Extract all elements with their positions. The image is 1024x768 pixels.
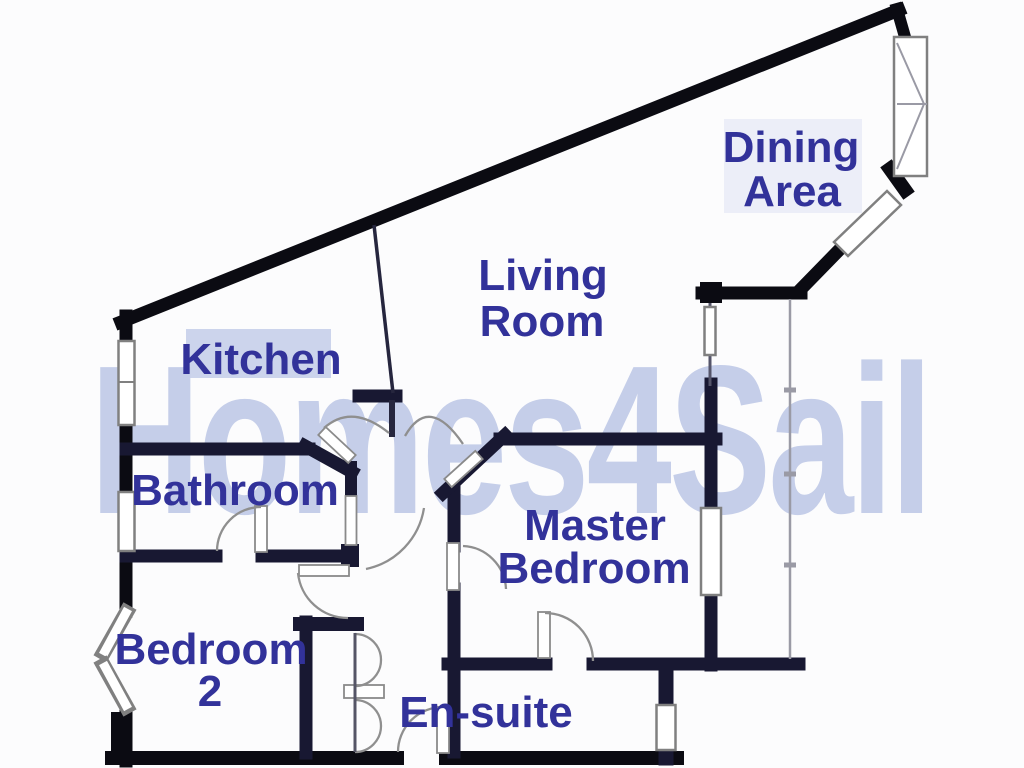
living-room-label-line1: Living xyxy=(478,251,608,300)
master-bedroom-window-icon xyxy=(701,508,721,595)
master-door-leaf xyxy=(447,543,459,590)
floor-plan-drawing: Homes4Sail xyxy=(0,0,1024,768)
master-bedroom-label-line1: Master xyxy=(524,501,666,550)
bedroom2-door-leaf xyxy=(299,565,349,576)
bathroom-label: Bathroom xyxy=(131,466,339,515)
bedroom2-label-line2: 2 xyxy=(198,667,222,716)
bedroom2-door-arc xyxy=(298,573,348,618)
dining-area-label-line1: Dining xyxy=(723,123,860,172)
ensuite-door-arc xyxy=(545,613,593,661)
closet-bifold-arc-top xyxy=(355,634,381,686)
closet-divider-bar xyxy=(344,685,384,698)
living-room-label-line2: Room xyxy=(480,297,605,346)
kitchen-label: Kitchen xyxy=(180,335,341,384)
bathroom-hall-door-leaf xyxy=(346,496,357,545)
right-peak-wall xyxy=(897,9,905,37)
bathroom-corner-post xyxy=(341,544,359,567)
ensuite-window-icon xyxy=(657,705,676,750)
closet-bifold-arc-bottom xyxy=(355,700,381,752)
balcony-corner-post xyxy=(700,282,722,303)
ensuite-label: En-suite xyxy=(399,688,573,737)
dining-area-label-line2: Area xyxy=(743,167,841,216)
ensuite-door-leaf xyxy=(538,612,550,658)
floor-plan-page: Homes4Sail xyxy=(0,0,1024,768)
balcony-small-window-icon xyxy=(705,307,716,355)
bay-lower-corner xyxy=(111,712,125,760)
master-bedroom-label-line2: Bedroom xyxy=(497,544,690,593)
dining-diagonal-wall xyxy=(801,246,843,289)
